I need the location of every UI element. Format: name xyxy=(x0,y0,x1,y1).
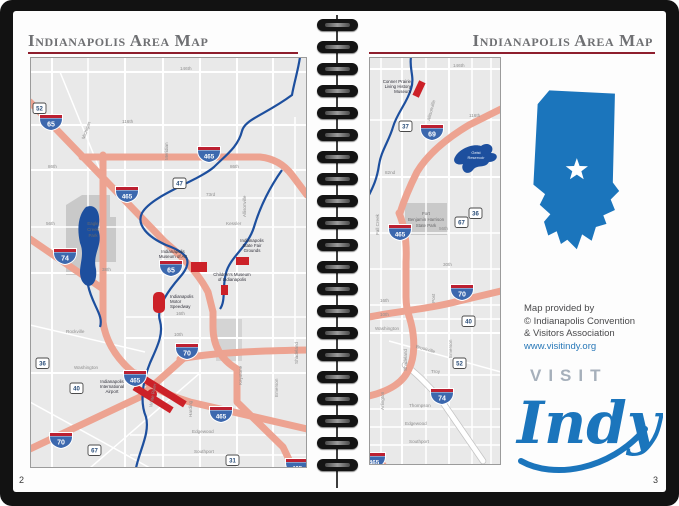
binding-loop xyxy=(317,195,358,207)
svg-text:69: 69 xyxy=(428,132,436,139)
svg-text:Museum of Art: Museum of Art xyxy=(159,254,188,259)
fairgrounds-marker xyxy=(236,257,249,265)
svg-text:465: 465 xyxy=(216,413,227,420)
svg-text:70: 70 xyxy=(458,292,466,299)
svg-text:Harding: Harding xyxy=(188,400,193,417)
svg-text:465: 465 xyxy=(130,377,141,384)
svg-text:16th: 16th xyxy=(380,298,389,303)
binding-loop xyxy=(317,63,358,75)
svg-text:38th: 38th xyxy=(102,267,111,272)
page-number-left: 2 xyxy=(19,475,24,485)
svg-text:Thompson: Thompson xyxy=(409,403,431,408)
binding-loop xyxy=(317,85,358,97)
book-cover: Indianapolis Area Map xyxy=(0,0,679,506)
svg-text:Grounds: Grounds xyxy=(244,248,262,253)
binding-loop xyxy=(317,459,358,471)
svg-text:52: 52 xyxy=(456,362,463,368)
binding-loop xyxy=(317,283,358,295)
binding-loop xyxy=(317,349,358,361)
svg-text:67: 67 xyxy=(91,449,98,455)
binding-loop xyxy=(317,261,358,273)
binding-loop xyxy=(317,41,358,53)
svg-text:56th: 56th xyxy=(46,221,55,226)
svg-text:Arlington: Arlington xyxy=(380,391,385,410)
svg-text:74: 74 xyxy=(61,256,69,263)
svg-text:Creek: Creek xyxy=(87,227,100,232)
map-credit: Map provided by © Indianapolis Conventio… xyxy=(524,303,635,353)
route-shield-36: 36 xyxy=(36,358,49,369)
svg-text:Rockville: Rockville xyxy=(66,329,85,334)
svg-text:Benjamin Harrison: Benjamin Harrison xyxy=(408,217,445,222)
motor-speedway-marker xyxy=(153,292,165,313)
svg-text:Troy: Troy xyxy=(431,369,441,374)
interstate-shield-465: 465 xyxy=(285,458,307,468)
title-rule-left xyxy=(28,52,298,54)
svg-text:Edgewood: Edgewood xyxy=(405,421,427,426)
interstate-shield-465-partial: 465 xyxy=(369,452,386,465)
page-title-left: Indianapolis Area Map xyxy=(28,31,208,51)
svg-text:Emerson: Emerson xyxy=(274,378,279,397)
svg-text:Park: Park xyxy=(88,233,98,238)
spiral-binding xyxy=(317,11,358,492)
indy-wordmark: Indy xyxy=(515,389,663,457)
svg-text:465: 465 xyxy=(204,153,215,160)
svg-text:Meridian: Meridian xyxy=(164,142,169,160)
svg-text:37: 37 xyxy=(402,125,409,131)
svg-text:116th: 116th xyxy=(122,119,134,124)
svg-text:56th: 56th xyxy=(439,226,448,231)
svg-text:74: 74 xyxy=(438,396,446,403)
svg-text:116th: 116th xyxy=(469,113,481,118)
svg-text:Shadeland: Shadeland xyxy=(403,349,408,371)
museum-of-art-marker xyxy=(191,262,207,272)
binding-loop xyxy=(317,305,358,317)
svg-text:465: 465 xyxy=(395,231,406,238)
childrens-museum-marker xyxy=(221,285,228,295)
svg-text:Southport: Southport xyxy=(409,439,430,444)
route-shield-36: 36 xyxy=(469,208,482,219)
svg-text:Washington: Washington xyxy=(375,326,400,331)
title-rule-right xyxy=(369,52,655,54)
route-shield-67: 67 xyxy=(88,445,101,456)
svg-text:Museum: Museum xyxy=(394,89,411,94)
binding-loop xyxy=(317,371,358,383)
svg-text:65: 65 xyxy=(167,268,175,275)
binding-loop xyxy=(317,239,358,251)
svg-text:30th: 30th xyxy=(443,262,452,267)
svg-text:40: 40 xyxy=(73,387,80,393)
binding-loop xyxy=(317,393,358,405)
route-shield-52: 52 xyxy=(453,358,466,369)
right-map: 69 465 70 74 465 37 36 67 40 xyxy=(369,57,501,465)
svg-text:Reservoir: Reservoir xyxy=(467,155,485,160)
binding-loop xyxy=(317,437,358,449)
left-map: 65 465 465 74 65 70 xyxy=(30,57,307,468)
svg-text:65: 65 xyxy=(47,122,55,129)
svg-text:Washington: Washington xyxy=(74,365,99,370)
route-shield-52: 52 xyxy=(33,103,46,114)
svg-text:Speedway: Speedway xyxy=(170,304,191,309)
svg-text:465: 465 xyxy=(122,193,133,200)
svg-text:Fall Creek: Fall Creek xyxy=(375,213,380,235)
svg-text:Keystone: Keystone xyxy=(238,365,243,385)
svg-text:52: 52 xyxy=(36,107,43,113)
binding-loop xyxy=(317,415,358,427)
page-number-right: 3 xyxy=(653,475,658,485)
svg-text:16th: 16th xyxy=(176,311,185,316)
svg-text:86th: 86th xyxy=(230,164,239,169)
svg-text:State Park: State Park xyxy=(416,223,437,228)
binding-loop xyxy=(317,107,358,119)
svg-text:86th: 86th xyxy=(48,164,57,169)
indy-logo: Indy xyxy=(511,381,663,485)
svg-text:47: 47 xyxy=(176,182,183,188)
route-shield-47: 47 xyxy=(173,178,186,189)
svg-text:Kessler: Kessler xyxy=(226,221,242,226)
svg-text:Allisonville: Allisonville xyxy=(242,195,247,217)
svg-text:Airport: Airport xyxy=(106,389,120,394)
svg-text:82nd: 82nd xyxy=(385,170,396,175)
svg-text:73rd: 73rd xyxy=(206,192,216,197)
binding-loop xyxy=(317,217,358,229)
svg-text:70: 70 xyxy=(57,440,65,447)
svg-text:67: 67 xyxy=(458,221,465,227)
svg-text:Eagle: Eagle xyxy=(87,221,99,226)
open-pages: Indianapolis Area Map xyxy=(13,11,666,492)
svg-text:Post: Post xyxy=(431,293,436,303)
binding-loop xyxy=(317,129,358,141)
credit-line: © Indianapolis Convention xyxy=(524,316,635,329)
visitindy-link[interactable]: www.visitindy.org xyxy=(524,341,635,354)
svg-text:31: 31 xyxy=(229,459,236,465)
binding-loop xyxy=(317,19,358,31)
svg-text:of Indianapolis: of Indianapolis xyxy=(218,277,247,282)
route-shield-31: 31 xyxy=(226,455,239,466)
svg-text:Fort: Fort xyxy=(422,211,431,216)
binding-loop xyxy=(317,327,358,339)
svg-text:10th: 10th xyxy=(380,312,389,317)
binding-loop xyxy=(317,151,358,163)
svg-text:40: 40 xyxy=(465,320,472,326)
svg-text:Emerson: Emerson xyxy=(448,339,453,358)
route-shield-40: 40 xyxy=(462,316,475,327)
svg-text:Southport: Southport xyxy=(194,449,215,454)
svg-text:70: 70 xyxy=(183,351,191,358)
page-title-right: Indianapolis Area Map xyxy=(473,31,653,51)
indiana-state-silhouette xyxy=(521,83,639,263)
credit-line: Map provided by xyxy=(524,303,635,316)
svg-text:Edgewood: Edgewood xyxy=(192,429,214,434)
route-shield-67: 67 xyxy=(455,217,468,228)
svg-text:36: 36 xyxy=(39,362,46,368)
binding-loop xyxy=(317,173,358,185)
credit-line: & Visitors Association xyxy=(524,328,635,341)
svg-text:10th: 10th xyxy=(174,332,183,337)
route-shield-37: 37 xyxy=(399,121,412,132)
svg-text:36: 36 xyxy=(472,212,479,218)
svg-text:146th: 146th xyxy=(180,66,192,71)
route-shield-40: 40 xyxy=(70,383,83,394)
svg-text:146th: 146th xyxy=(453,63,465,68)
svg-text:Shadeland: Shadeland xyxy=(294,342,299,364)
